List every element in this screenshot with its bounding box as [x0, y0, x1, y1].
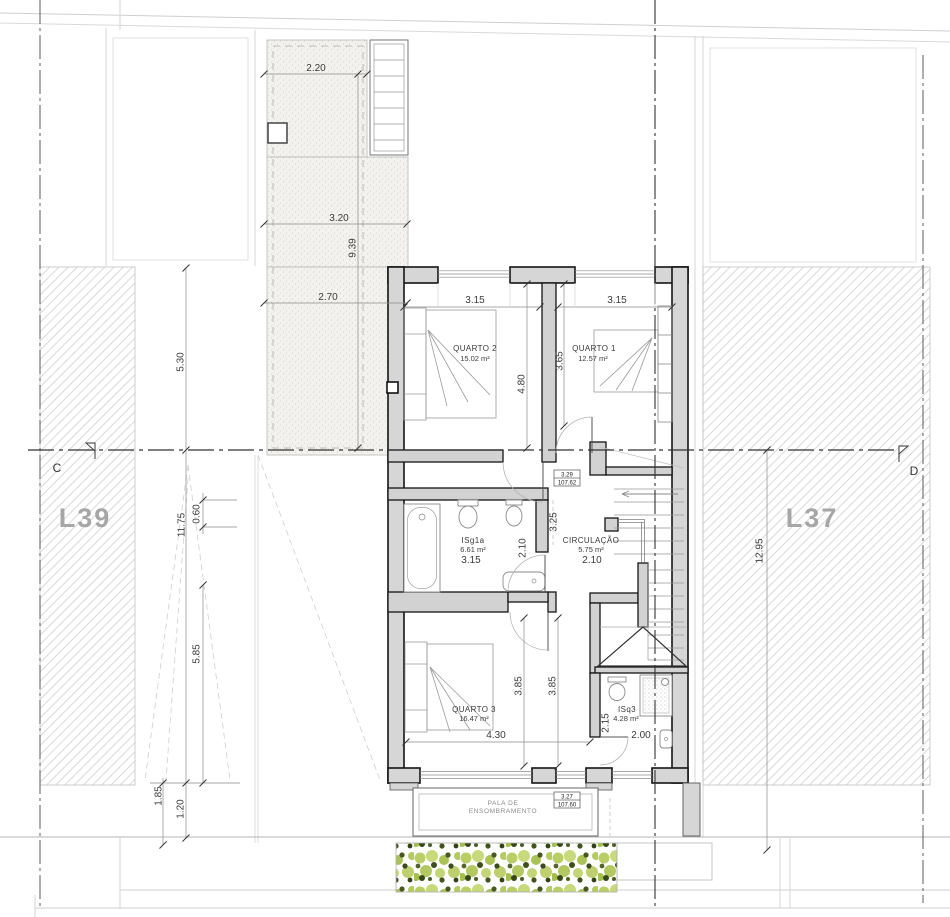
- dim-isg1a-height: 2.10: [518, 538, 529, 558]
- floor-plan-canvas: L39 L37 C D QUARTO 2 15.02 m² QUARTO 1 1…: [0, 0, 950, 917]
- dim-quarto3-height-left: 3.85: [514, 676, 525, 696]
- pala-label-line1: PALA DE: [488, 800, 519, 807]
- dim-right-total: 12.95: [755, 538, 766, 563]
- dim-bottom-a: 1.85: [154, 786, 165, 806]
- dim-quarto3-height-right: 3.85: [548, 676, 559, 696]
- dim-quarto1-height: 3.65: [555, 351, 566, 371]
- wall-vent: [387, 382, 398, 393]
- room-label-quarto1: QUARTO 1: [572, 344, 616, 353]
- lot-label-l37: L37: [786, 503, 839, 533]
- dim-quarto2-width: 3.15: [465, 295, 485, 306]
- room-label-isq3: ISq3: [618, 705, 636, 714]
- section-marker-d: D: [910, 464, 919, 478]
- dim-circulacao-width: 2.10: [582, 555, 602, 566]
- stair-column: [605, 518, 618, 531]
- dim-isq3-width: 2.00: [631, 730, 651, 741]
- room-label-isg1a: ISg1a: [462, 536, 485, 545]
- roof-ladder: [370, 40, 408, 155]
- dim-terrace-mid: 3.20: [329, 213, 349, 224]
- level-pala-abs: 107.60: [558, 803, 577, 809]
- room-area-quarto1: 12.57 m²: [578, 354, 608, 363]
- dim-corridor: 3.25: [549, 512, 560, 532]
- room-area-quarto3: 16.47 m²: [459, 714, 489, 723]
- room-label-quarto3: QUARTO 3: [452, 705, 496, 714]
- section-marker-c: C: [53, 461, 62, 475]
- dim-terrace-length: 9.39: [348, 238, 359, 258]
- room-area-circulacao: 5.75 m²: [578, 545, 604, 554]
- dim-terrace-top: 2.20: [306, 63, 326, 74]
- room-area-isq3: 4.28 m²: [613, 714, 639, 723]
- yard-guide-lines: [145, 455, 380, 780]
- dim-isq3-height: 2.15: [601, 713, 612, 733]
- dim-left-upper: 5.30: [176, 352, 187, 372]
- dim-isg1a-width: 3.15: [461, 555, 481, 566]
- floor-plan: L39 L37 C D QUARTO 2 15.02 m² QUARTO 1 1…: [0, 0, 950, 917]
- dim-quarto1-width: 3.15: [607, 295, 627, 306]
- pala-label-line2: ENSOMBRAMENTO: [469, 808, 537, 815]
- terrace-box: [268, 123, 287, 143]
- level-pala-rel: 3.27: [561, 795, 573, 801]
- room-label-circulacao: CIRCULAÇÃO: [563, 536, 619, 545]
- dim-left-lower: 5.85: [192, 644, 203, 664]
- dim-quarto2-height: 4.80: [517, 374, 528, 394]
- room-area-isg1a: 6.61 m²: [460, 545, 486, 554]
- dim-quarto3-width: 4.30: [486, 730, 506, 741]
- room-label-quarto2: QUARTO 2: [453, 344, 497, 353]
- dim-left-total: 11.75: [177, 512, 188, 537]
- dim-bottom-b: 1.20: [176, 799, 187, 819]
- room-area-quarto2: 15.02 m²: [460, 354, 490, 363]
- dim-left-inset: 0.60: [192, 504, 203, 524]
- level-stair-abs: 107.62: [558, 481, 577, 487]
- lot-label-l39: L39: [59, 503, 112, 533]
- level-stair-rel: 3.29: [561, 473, 573, 479]
- dim-terrace-low: 2.70: [318, 292, 338, 303]
- hedge: [396, 843, 617, 892]
